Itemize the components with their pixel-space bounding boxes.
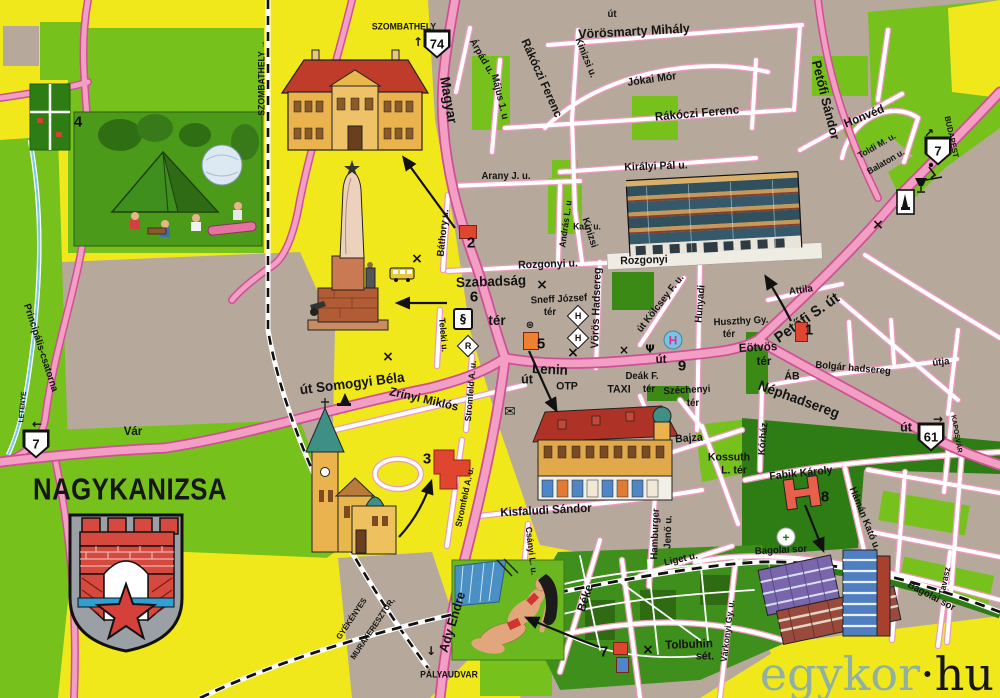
school-illustration	[282, 50, 428, 150]
hotel-illustration	[533, 406, 678, 500]
monument-box-icon	[897, 190, 914, 214]
lido-sunbather-illustration	[452, 559, 564, 660]
map-graphics	[0, 0, 1000, 698]
nagykanizsa-tourist-map: SZOMBATHELYVörösmarty MihályRákóczi Fere…	[0, 0, 1000, 698]
watermark-egykor: egykor	[760, 647, 920, 698]
watermark: egykor·hu	[760, 650, 994, 698]
office-building-illustration	[603, 171, 822, 270]
coat-of-arms	[70, 515, 182, 651]
map-title: NAGYKANIZSA	[33, 472, 227, 507]
watermark-hu: ·hu	[920, 647, 994, 698]
camping-field	[30, 84, 70, 150]
camping-illustration	[74, 112, 262, 246]
